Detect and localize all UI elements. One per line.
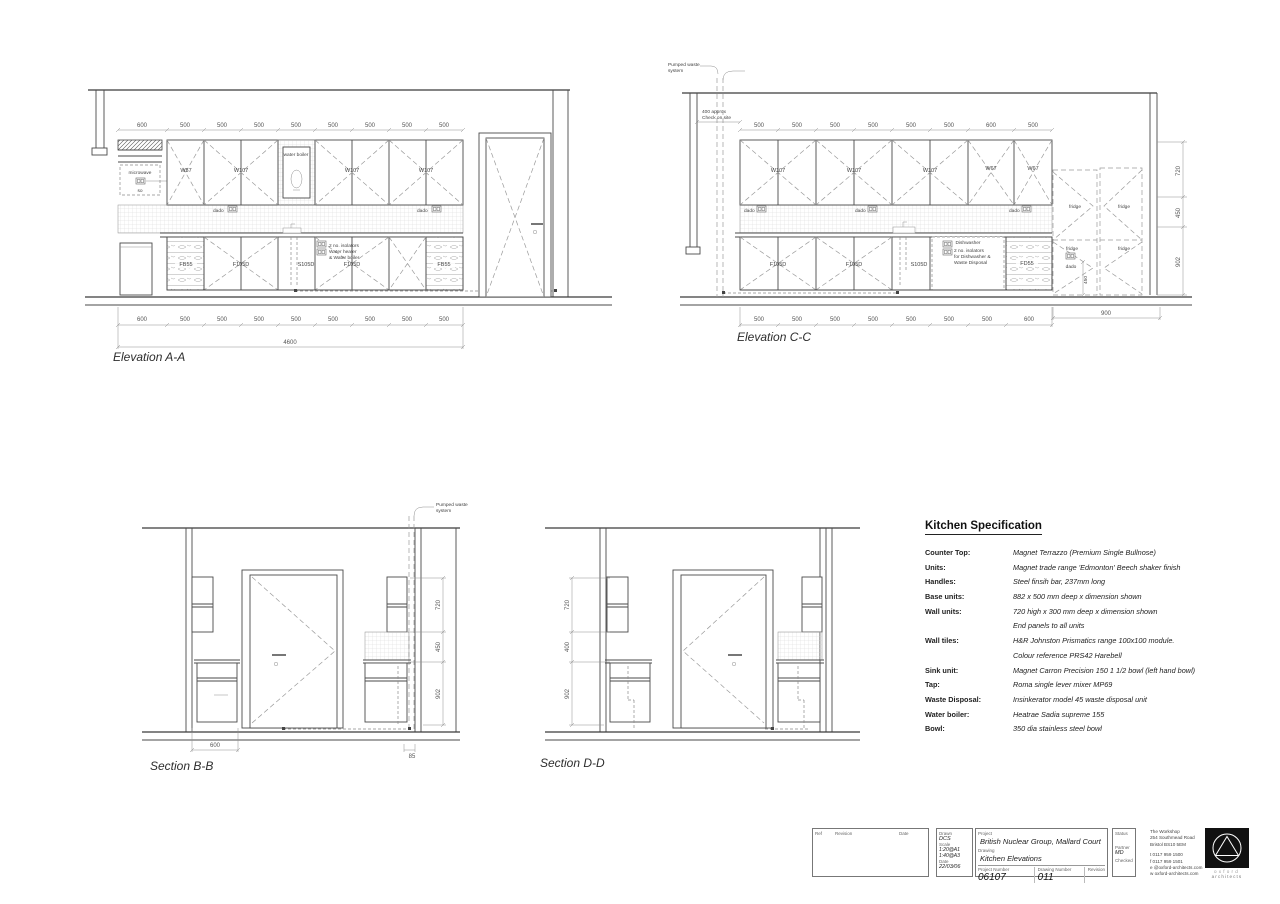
fridge-label: fridge bbox=[1118, 204, 1130, 210]
dim-label: 500 bbox=[254, 123, 265, 129]
spec-label: Handles: bbox=[925, 577, 1013, 586]
base-unit-label: F105D bbox=[770, 262, 787, 268]
dim-label: 400 bbox=[565, 641, 571, 652]
dim-label: 902 bbox=[565, 688, 571, 699]
spec-value: Heatrae Sadia supreme 155 bbox=[1013, 710, 1247, 719]
date-header: Date bbox=[899, 831, 909, 836]
dim-label: 500 bbox=[868, 123, 879, 129]
right-base-unit bbox=[363, 660, 411, 725]
microwave-label: microwave bbox=[129, 170, 152, 176]
dim-label: 500 bbox=[792, 317, 803, 323]
revision-cell: Revision bbox=[1084, 867, 1105, 883]
dim-label: 500 bbox=[402, 317, 413, 323]
tile-splashback bbox=[778, 632, 822, 660]
dim-label: 500 bbox=[180, 123, 191, 129]
fridges bbox=[1053, 168, 1142, 297]
dim-label: 720 bbox=[565, 599, 571, 610]
wall-unit-label: W107 bbox=[923, 168, 937, 174]
dim-label: 720 bbox=[1176, 165, 1182, 176]
checked-label: Checked bbox=[1115, 858, 1133, 863]
spec-value: Magnet trade range 'Edmonton' Beech shak… bbox=[1013, 563, 1247, 572]
dim-label: 600 bbox=[210, 743, 221, 749]
base-unit-label: FD55 bbox=[1020, 261, 1033, 267]
base-unit-label: S105D bbox=[911, 262, 928, 268]
spec-row: Waste Disposal:Insinkerator model 45 was… bbox=[925, 695, 1247, 710]
dim-socket-label: 450 bbox=[1083, 276, 1089, 284]
revision-label: Revision bbox=[1088, 867, 1105, 872]
dim-label: 500 bbox=[906, 317, 917, 323]
dim-label: 450 bbox=[1176, 207, 1182, 218]
dim-label: 500 bbox=[402, 123, 413, 129]
left-base-unit bbox=[605, 660, 652, 729]
project-box: Project British Nuclear Group, Mallard C… bbox=[975, 828, 1108, 877]
pumped-waste-note: Pumped waste bbox=[668, 62, 700, 68]
dim-label: 600 bbox=[986, 123, 997, 129]
dimensions bbox=[569, 576, 610, 727]
dim-fridge-label: 900 bbox=[1101, 311, 1112, 317]
spec-value: Roma single lever mixer MP69 bbox=[1013, 680, 1247, 689]
base-unit-label: F105D bbox=[233, 262, 250, 268]
dim-label: 500 bbox=[830, 317, 841, 323]
spec-row: Units:Magnet trade range 'Edmonton' Beec… bbox=[925, 563, 1247, 578]
dim-label: 500 bbox=[754, 123, 765, 129]
dado-label: dado bbox=[744, 208, 755, 214]
spec-label: Base units: bbox=[925, 592, 1013, 601]
spec-row: Base units:882 x 500 mm deep x dimension… bbox=[925, 592, 1247, 607]
spec-value: Magnet Carron Precision 150 1 1/2 bowl (… bbox=[1013, 666, 1247, 675]
dim-label: 600 bbox=[137, 123, 148, 129]
dim-label: 500 bbox=[217, 317, 228, 323]
date-value: 22/03/06 bbox=[939, 864, 970, 870]
dim-label: 500 bbox=[328, 317, 339, 323]
dado-label: dado bbox=[213, 208, 224, 214]
spec-value: H&R Johnston Prismatics range 100x100 mo… bbox=[1013, 636, 1247, 645]
fridge-label: fridge bbox=[1066, 246, 1078, 252]
dim-label: 500 bbox=[217, 123, 228, 129]
spec-label: Waste Disposal: bbox=[925, 695, 1013, 704]
dim-label: 500 bbox=[365, 317, 376, 323]
spec-row: Colour reference PRS42 Harebell bbox=[925, 651, 1247, 666]
dado-label: dado bbox=[417, 208, 428, 214]
dim-label: 902 bbox=[436, 688, 442, 699]
isolator-note: Water heater bbox=[329, 249, 357, 255]
section-d-title: Section D-D bbox=[540, 756, 605, 770]
isolator-note: for Dishwasher & bbox=[954, 254, 991, 260]
spec-value: Insinkerator model 45 waste disposal uni… bbox=[1013, 695, 1247, 704]
drawing-sheet: 600 500 500 500 500 500 500 500 500 600 … bbox=[0, 0, 1280, 904]
firm-address-line: Bristol BS10 5EM bbox=[1150, 842, 1206, 848]
dado-label: dado bbox=[855, 208, 866, 214]
wall-unit-label: W107 bbox=[234, 168, 248, 174]
spec-value: Steel finsih bar, 237mm long bbox=[1013, 577, 1247, 586]
spec-row: Bowl:350 dia stainless steel bowl bbox=[925, 724, 1247, 739]
spec-label: Tap: bbox=[925, 680, 1013, 689]
right-base-unit bbox=[776, 660, 824, 729]
dim-label: 500 bbox=[944, 123, 955, 129]
elevation-a-a bbox=[85, 90, 612, 349]
wall-units bbox=[740, 140, 1052, 205]
pumped-waste-pipe bbox=[700, 66, 745, 297]
wall-unit-label: W67 bbox=[1027, 166, 1038, 172]
spec-label: Counter Top: bbox=[925, 548, 1013, 557]
section-b-b bbox=[142, 507, 460, 752]
wall-unit-label: W107 bbox=[771, 168, 785, 174]
dim-label: 500 bbox=[906, 123, 917, 129]
dim-label: 85 bbox=[409, 754, 416, 760]
dim-label: 500 bbox=[1028, 123, 1039, 129]
dim-label: 500 bbox=[982, 317, 993, 323]
spec-value: 350 dia stainless steel bowl bbox=[1013, 724, 1247, 733]
left-wall-unit bbox=[607, 577, 628, 632]
elevation-c-c bbox=[680, 66, 1192, 327]
door bbox=[479, 133, 551, 297]
door bbox=[242, 570, 343, 728]
water-boiler-label: water boiler bbox=[284, 152, 309, 158]
wall-unit-label: W67 bbox=[985, 166, 996, 172]
drawn-scale-date-box: Drawn DCS Scale 1:20@A1 1:40@A3 Date 22/… bbox=[936, 828, 973, 877]
isolator-note: Waste Disposal bbox=[954, 260, 987, 266]
dim-label: 500 bbox=[180, 317, 191, 323]
dim-label: 500 bbox=[291, 317, 302, 323]
dim-label: 902 bbox=[1176, 256, 1182, 267]
check-note: Check on site bbox=[702, 115, 731, 121]
worktop bbox=[735, 233, 1052, 237]
spec-row: Sink unit:Magnet Carron Precision 150 1 … bbox=[925, 666, 1247, 681]
door bbox=[673, 570, 773, 728]
spec-row: Wall tiles:H&R Johnston Prismatics range… bbox=[925, 636, 1247, 651]
status-label: Status bbox=[1115, 831, 1133, 836]
worktop bbox=[160, 233, 463, 237]
spec-row: Water boiler:Heatrae Sadia supreme 155 bbox=[925, 710, 1247, 725]
spec-value: 720 high x 300 mm deep x dimension shown bbox=[1013, 607, 1247, 616]
dim-label: 500 bbox=[439, 317, 450, 323]
logo-circle-triangle-icon bbox=[1205, 828, 1249, 868]
dim-label: 500 bbox=[792, 123, 803, 129]
logo-word-architects: architects bbox=[1205, 874, 1249, 879]
pumped-waste-note: system bbox=[668, 68, 683, 74]
drawing-name: Kitchen Elevations bbox=[980, 854, 1105, 863]
dishwasher-label: Dishwasher bbox=[955, 240, 980, 246]
spec-row: Tap:Roma single lever mixer MP69 bbox=[925, 680, 1247, 695]
elevation-a-title: Elevation A-A bbox=[113, 350, 185, 364]
socket-label: so bbox=[137, 189, 142, 194]
spec-row: End panels to all units bbox=[925, 621, 1247, 636]
spec-label: Sink unit: bbox=[925, 666, 1013, 675]
dim-label: 500 bbox=[365, 123, 376, 129]
revision-header: Revision bbox=[835, 831, 852, 836]
dim-label: 720 bbox=[436, 599, 442, 610]
spec-title: Kitchen Specification bbox=[925, 520, 1042, 535]
right-wall-unit bbox=[802, 577, 822, 632]
section-d-d bbox=[545, 528, 860, 740]
dim-label: 500 bbox=[254, 317, 265, 323]
firm-address: The Workshop 254 Southmead Road Bristol … bbox=[1150, 829, 1206, 878]
isolator-note: 2 no. isolators bbox=[954, 248, 984, 254]
spec-label: Water boiler: bbox=[925, 710, 1013, 719]
firm-web: w oxford-architects.com bbox=[1150, 871, 1206, 877]
dim-label: 500 bbox=[754, 317, 765, 323]
pumped-waste-note: Pumped waste bbox=[436, 502, 468, 508]
dado-label: dado bbox=[1009, 208, 1020, 214]
project-number-cell: Project Number 06107 bbox=[978, 867, 1034, 883]
microwave-shelf bbox=[118, 140, 170, 195]
spec-value: 882 x 500 mm deep x dimension shown bbox=[1013, 592, 1247, 601]
spec-row: Wall units:720 high x 300 mm deep x dime… bbox=[925, 607, 1247, 622]
spec-label: Bowl: bbox=[925, 724, 1013, 733]
drawing-number-cell: Drawing Number 011 bbox=[1034, 867, 1084, 883]
left-base-unit bbox=[194, 660, 240, 722]
elevation-c-title: Elevation C-C bbox=[737, 330, 811, 344]
base-unit-label: FB55 bbox=[179, 262, 192, 268]
dim-label: 500 bbox=[439, 123, 450, 129]
spec-value: Magnet Terrazzo (Premium Single Bullnose… bbox=[1013, 548, 1247, 557]
section-b-title: Section B-B bbox=[150, 759, 213, 773]
logo-wordmark: oxford architects bbox=[1205, 869, 1249, 880]
wall-unit-label: W107 bbox=[345, 168, 359, 174]
architects-logo bbox=[1205, 828, 1249, 868]
revision-table: Ref Revision Date bbox=[812, 828, 929, 877]
drawing-label: Drawing bbox=[978, 848, 1105, 853]
partner-value: MD bbox=[1115, 850, 1133, 856]
spec-value: Colour reference PRS42 Harebell bbox=[1013, 651, 1247, 660]
right-wall-unit bbox=[387, 577, 407, 632]
base-unit-label: F105D bbox=[846, 262, 863, 268]
drawing-number: 011 bbox=[1038, 872, 1084, 883]
pumped-waste-pipe bbox=[409, 507, 434, 729]
project-number: 06107 bbox=[978, 872, 1034, 883]
fridge-label: fridge bbox=[1069, 204, 1081, 210]
spec-row: Counter Top:Magnet Terrazzo (Premium Sin… bbox=[925, 548, 1247, 563]
project-name: British Nuclear Group, Mallard Court bbox=[980, 837, 1105, 846]
dim-label: 500 bbox=[830, 123, 841, 129]
base-unit-label: F105D bbox=[344, 262, 361, 268]
isolator-note: 2 no. isolators bbox=[329, 243, 359, 249]
drawing-canvas: 600 500 500 500 500 500 500 500 500 600 … bbox=[0, 0, 1280, 904]
project-label: Project bbox=[978, 831, 1105, 836]
isolator-note: & Water boiler bbox=[329, 255, 360, 261]
dim-label: 600 bbox=[137, 317, 148, 323]
dim-label: 500 bbox=[328, 123, 339, 129]
spec-label: Units: bbox=[925, 563, 1013, 572]
wall-unit-label: W57 bbox=[180, 168, 191, 174]
base-unit-label: FB55 bbox=[437, 262, 450, 268]
spec-value: End panels to all units bbox=[1013, 621, 1247, 630]
dim-label: 500 bbox=[944, 317, 955, 323]
dado-label: dado bbox=[1066, 264, 1077, 270]
spec-label: Wall units: bbox=[925, 607, 1013, 616]
spec-label: Wall tiles: bbox=[925, 636, 1013, 645]
dim-label: 500 bbox=[291, 123, 302, 129]
check-note: 400 approx bbox=[702, 109, 727, 115]
ref-header: Ref bbox=[815, 831, 822, 836]
pumped-waste-note: system bbox=[436, 508, 451, 514]
left-wall-unit bbox=[192, 577, 213, 632]
dim-label: 600 bbox=[1024, 317, 1035, 323]
fridge-label: fridge bbox=[1118, 246, 1130, 252]
tile-splashback bbox=[365, 632, 409, 660]
base-unit-label: S105D bbox=[298, 262, 315, 268]
dim-label: 450 bbox=[436, 641, 442, 652]
kitchen-specification: Kitchen Specification Counter Top:Magnet… bbox=[925, 516, 1247, 739]
status-box: Status Partner MD Checked bbox=[1112, 828, 1136, 877]
dim-total-label: 4600 bbox=[283, 340, 297, 346]
spec-row: Handles:Steel finsih bar, 237mm long bbox=[925, 577, 1247, 592]
dim-label: 500 bbox=[868, 317, 879, 323]
wall-unit-label: W107 bbox=[419, 168, 433, 174]
wall-unit-label: W107 bbox=[847, 168, 861, 174]
